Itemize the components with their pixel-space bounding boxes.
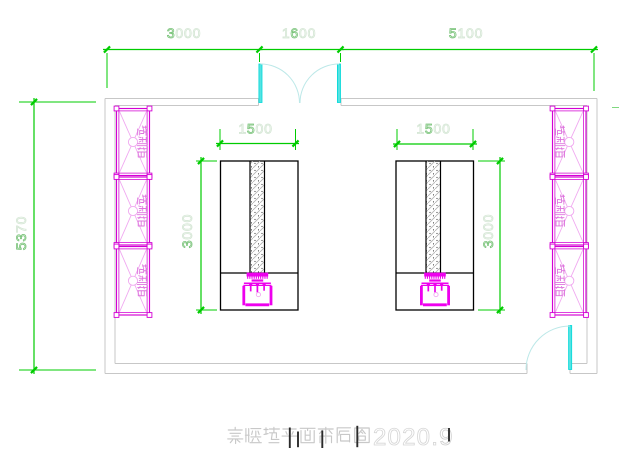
svg-text:5370: 5370	[13, 216, 29, 250]
svg-text:3000: 3000	[480, 214, 496, 248]
svg-text:3000: 3000	[167, 25, 201, 41]
svg-text:2020.9: 2020.9	[373, 424, 454, 451]
svg-text:1500: 1500	[416, 121, 450, 137]
svg-text:3000: 3000	[179, 214, 195, 248]
svg-text:1500: 1500	[238, 121, 272, 137]
svg-text:5100: 5100	[449, 25, 483, 41]
svg-text:1600: 1600	[282, 25, 316, 41]
